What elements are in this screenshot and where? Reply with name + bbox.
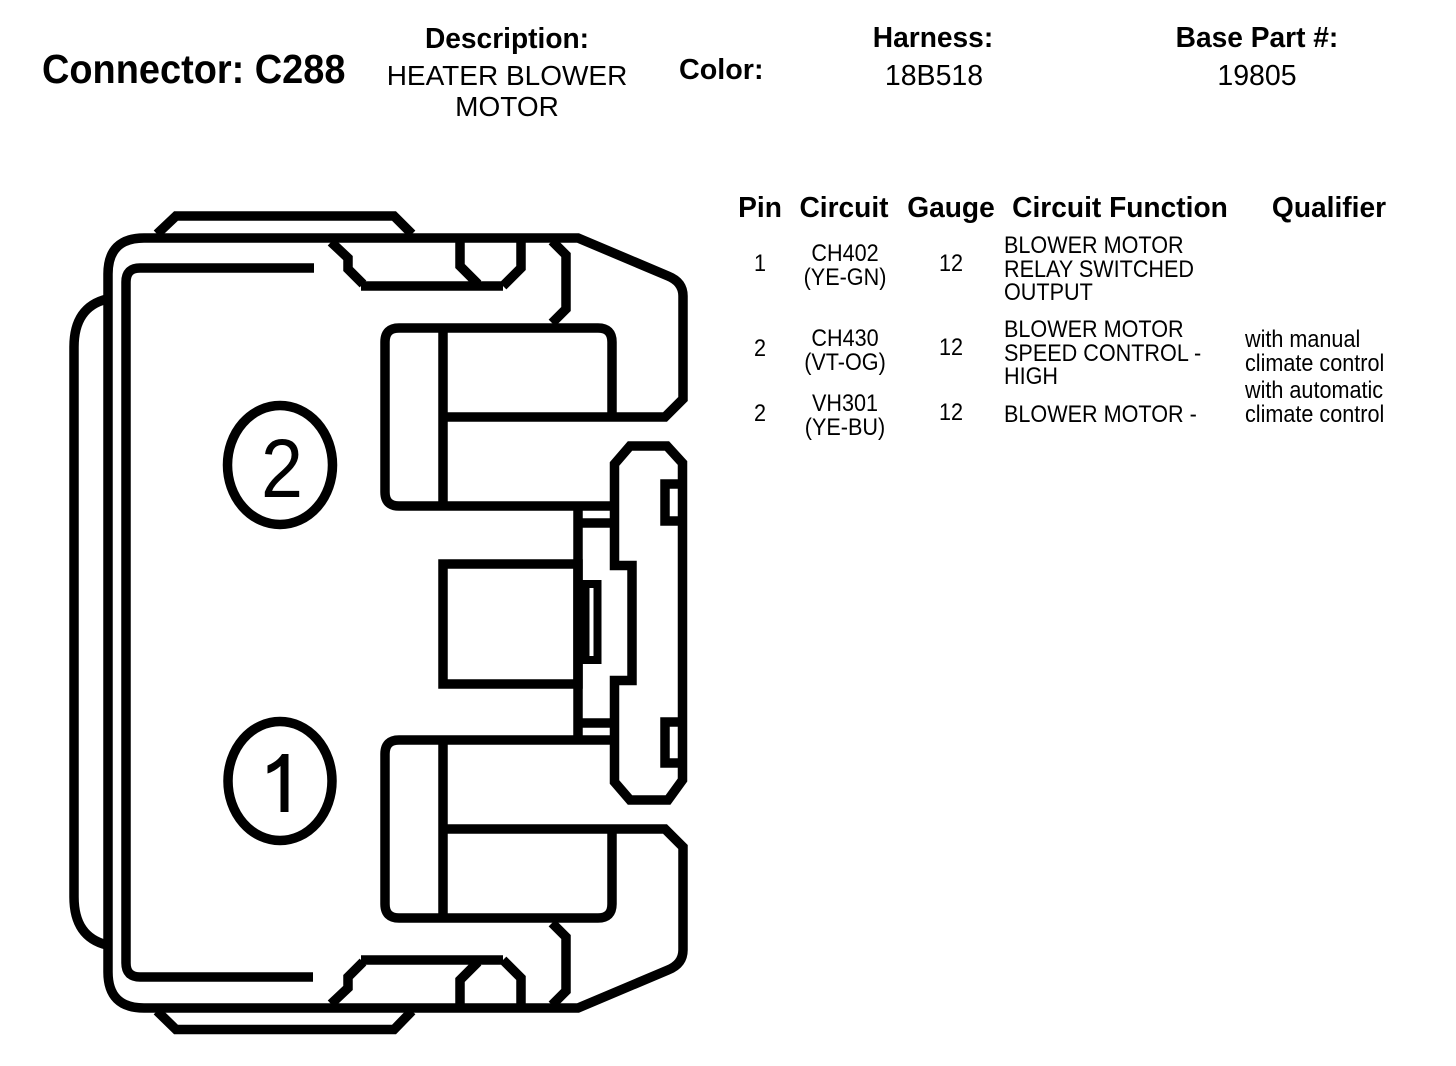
svg-text:2: 2 bbox=[261, 422, 303, 515]
